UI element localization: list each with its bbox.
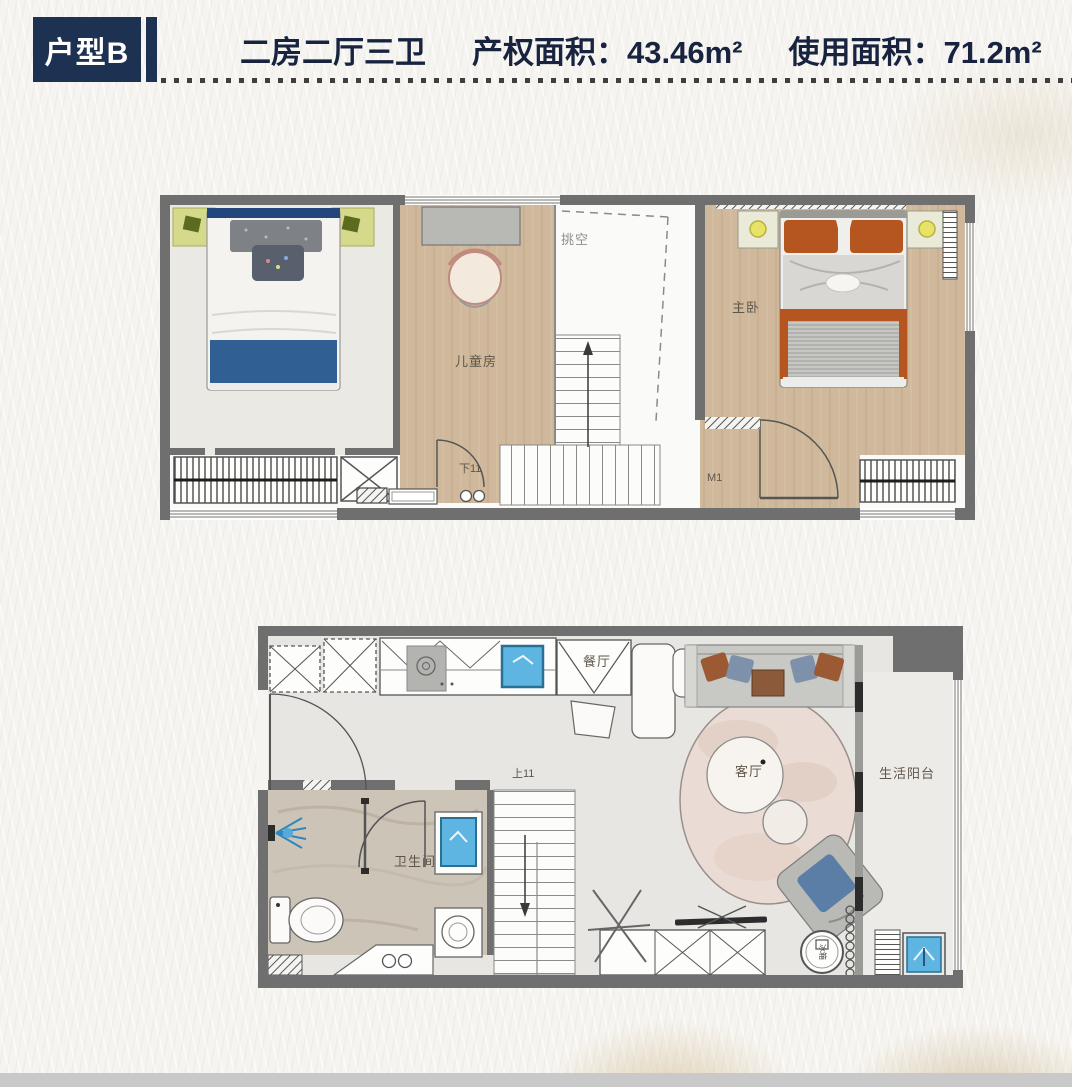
desk	[422, 207, 520, 245]
balcony-window	[953, 680, 963, 970]
label-void: 挑空	[561, 233, 589, 246]
badge-accent-bar	[146, 17, 157, 82]
master-bed	[780, 211, 907, 387]
window-bottom-right	[860, 508, 955, 520]
sofa-tray	[752, 670, 784, 696]
dotted-separator	[161, 78, 1072, 83]
label-fridge: 冰箱	[818, 944, 826, 960]
master-wall-unit	[943, 211, 957, 279]
label-bathroom: 卫生间	[394, 855, 436, 868]
page: 户型B 二房二厅三卫产权面积：43.46m²使用面积：71.2m²	[0, 0, 1072, 1087]
unit-type-badge: 户型B	[33, 17, 141, 82]
washing-machine	[435, 908, 482, 957]
wall-bedroom-kids	[393, 205, 400, 455]
property-area-label: 产权面积：	[472, 35, 627, 70]
usable-area-value: 71.2m²	[943, 35, 1041, 70]
kitchen-cabinet-dashed-2	[324, 639, 376, 692]
bottom-edge-strip	[0, 1073, 1072, 1087]
kitchen-counter	[380, 638, 556, 695]
tv-bench	[600, 930, 765, 975]
layout-type-text: 二房二厅三卫	[240, 35, 426, 70]
cooktop	[407, 646, 446, 691]
usable-area-label: 使用面积：	[788, 35, 943, 70]
toilet	[270, 897, 343, 943]
label-dining: 餐厅	[583, 655, 611, 668]
sofa	[685, 645, 855, 707]
shelf-box	[389, 489, 437, 504]
lower-floor-plan: 餐厅 上11 客厅 生活阳台 卫生间 冰箱	[258, 622, 963, 988]
flower-bed-railing	[174, 457, 337, 503]
property-area-value: 43.46m²	[627, 35, 742, 70]
master-nightstand-left	[738, 211, 778, 248]
dining-chair-left	[571, 701, 615, 738]
kitchen-cabinet-dashed-1	[270, 646, 320, 692]
coffee-table-small	[763, 800, 807, 844]
master-se-railing	[860, 460, 955, 502]
balcony-ladder-rack	[875, 930, 900, 975]
label-stairs-up: 上11	[512, 769, 534, 780]
master-door-lintel-hatch	[705, 417, 760, 429]
header-title-row: 二房二厅三卫产权面积：43.46m²使用面积：71.2m²	[240, 27, 1042, 72]
wall-under-bedroom	[170, 448, 393, 455]
window-bottom-left	[170, 508, 337, 520]
bathroom-vanity	[435, 812, 482, 874]
flue-hatch-box	[357, 488, 387, 503]
window-top	[405, 195, 560, 205]
balcony-sink	[903, 933, 945, 976]
label-door-mark: M1	[707, 473, 722, 484]
lower-floor-drawing	[258, 622, 963, 988]
master-nightstand-right	[907, 211, 947, 248]
kitchen-sink	[502, 646, 543, 687]
label-stairs-down: 下11	[459, 464, 481, 475]
stairs-lower	[494, 790, 575, 975]
kids-bed	[207, 208, 340, 390]
wall-void-master	[695, 205, 705, 420]
bathroom-wall-hatch	[303, 780, 331, 790]
property-area-text: 产权面积：43.46m²	[472, 35, 742, 70]
label-living: 客厅	[735, 765, 763, 778]
label-master-bedroom: 主卧	[732, 301, 760, 314]
label-balcony: 生活阳台	[879, 767, 935, 780]
balcony-divider	[855, 645, 863, 975]
upper-floor-plan: 挑空 儿童房 主卧 下11 M1	[160, 195, 975, 520]
label-kids-room: 儿童房	[455, 355, 497, 368]
usable-area-text: 使用面积：71.2m²	[788, 35, 1041, 70]
window-right	[965, 223, 975, 331]
